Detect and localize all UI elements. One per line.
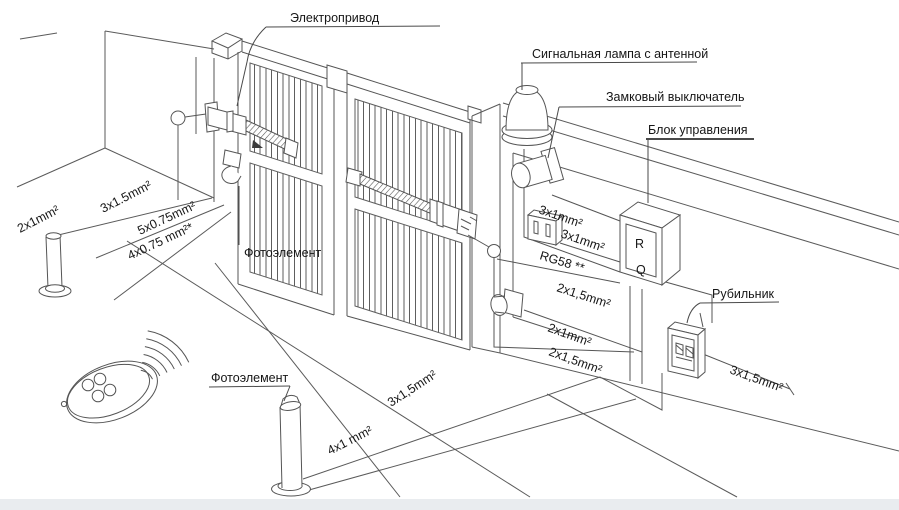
- remote-button: [104, 384, 116, 396]
- control-unit-letter-r: R: [635, 237, 644, 251]
- gate-automation-wiring-diagram: R Q: [0, 0, 899, 510]
- cable-gland: [488, 245, 501, 258]
- label-signal-lamp: Сигнальная лампа с антенной: [532, 47, 708, 61]
- label-lock-switch: Замковый выключатель: [606, 90, 744, 104]
- remote-button: [82, 379, 94, 391]
- label-knife-switch: Рубильник: [712, 287, 775, 301]
- label-photocell-ground: Фотоэлемент: [211, 371, 289, 385]
- label-electric-drive: Электропривод: [290, 11, 380, 25]
- drive-rear-ball: [171, 111, 185, 125]
- remote-button: [92, 390, 104, 402]
- label-photocell-gate: Фотоэлемент: [244, 246, 322, 260]
- control-unit-device: R Q: [620, 202, 680, 285]
- control-unit-letter-q: Q: [636, 263, 646, 277]
- remote-button: [94, 373, 106, 385]
- ground-strip: [0, 499, 899, 510]
- diagram-canvas: R Q: [0, 0, 899, 510]
- label-control-unit: Блок управления: [648, 123, 748, 137]
